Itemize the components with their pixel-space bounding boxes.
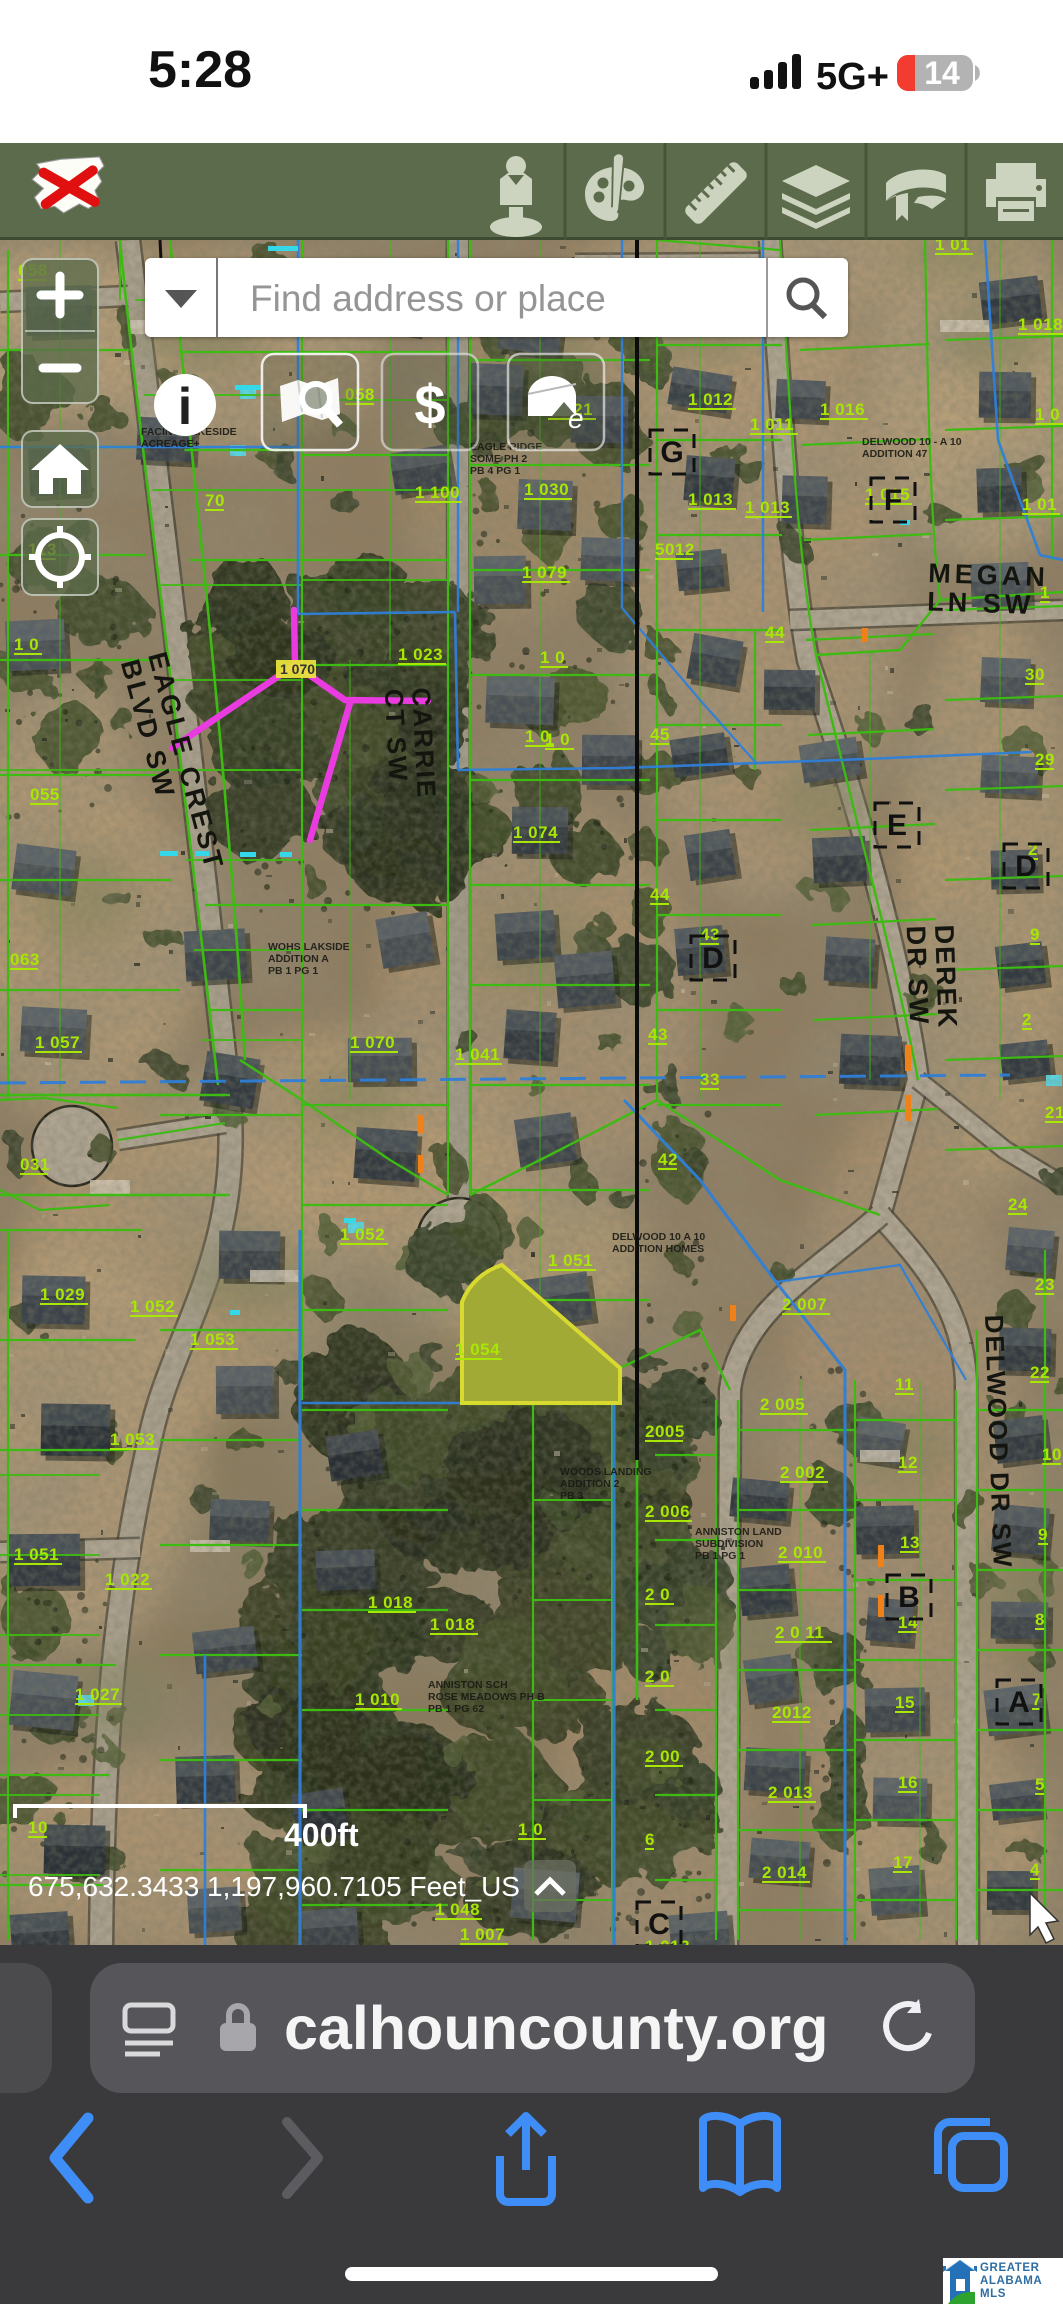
svg-text:GREATER: GREATER [980,2262,1040,2274]
svg-text:1 0: 1 0 [14,635,39,654]
svg-text:MLS: MLS [980,2288,1006,2300]
svg-text:2 010: 2 010 [778,1543,823,1562]
svg-text:1 053: 1 053 [190,1330,235,1349]
svg-text:2012: 2012 [772,1703,812,1722]
svg-text:30: 30 [1025,665,1045,684]
svg-text:1 057: 1 057 [35,1033,80,1052]
svg-text:2005: 2005 [645,1422,685,1441]
svg-text:10: 10 [1042,1445,1062,1464]
svg-text:22: 22 [1030,1363,1050,1382]
svg-text:5012: 5012 [655,540,695,559]
svg-text:45: 45 [650,725,670,744]
svg-text:10: 10 [28,1818,48,1837]
svg-text:1 01: 1 01 [935,240,970,254]
svg-text:055: 055 [30,785,60,804]
svg-text:44: 44 [765,623,785,642]
svg-text:400ft: 400ft [284,1817,359,1853]
svg-text:i: i [178,378,192,436]
svg-text:9: 9 [1030,925,1040,944]
svg-text:1 053: 1 053 [110,1430,155,1449]
svg-text:1 051: 1 051 [548,1251,593,1270]
svg-text:42: 42 [658,1150,678,1169]
svg-text:2 007: 2 007 [782,1295,827,1314]
svg-text:1 018: 1 018 [1018,315,1063,334]
svg-text:D: D [702,942,724,975]
svg-text:calhouncounty.org: calhouncounty.org [284,1994,828,2062]
svg-text:1 011: 1 011 [750,415,794,434]
svg-text:9: 9 [1038,1525,1048,1544]
svg-text:4: 4 [1030,1860,1040,1879]
svg-text:e: e [568,403,584,434]
svg-text:031: 031 [20,1155,50,1174]
svg-text:E: E [887,809,907,842]
svg-text:DEREKDR SW: DEREKDR SW [901,924,963,1030]
svg-text:1 070: 1 070 [350,1033,395,1052]
svg-text:2 002: 2 002 [780,1463,825,1482]
svg-text:F: F [884,484,902,517]
svg-text:1 100: 1 100 [415,483,460,502]
svg-text:1 010: 1 010 [355,1690,400,1709]
svg-text:1 051: 1 051 [14,1545,59,1564]
svg-text:MEGANLN SW: MEGANLN SW [927,558,1049,621]
svg-text:44: 44 [650,885,670,904]
svg-text:17: 17 [893,1853,913,1872]
svg-text:1 007: 1 007 [460,1925,505,1944]
svg-text:2 005: 2 005 [760,1395,805,1414]
svg-text:2 0: 2 0 [645,1585,670,1604]
svg-text:5G+: 5G+ [816,56,889,98]
svg-text:6: 6 [645,1830,655,1849]
svg-text:D: D [1015,850,1037,883]
svg-text:B: B [898,1581,920,1614]
svg-text:11: 11 [895,1375,914,1394]
svg-text:5: 5 [1035,1775,1045,1794]
svg-text:29: 29 [1035,750,1055,769]
svg-text:1 079: 1 079 [522,563,567,582]
svg-text:1 0: 1 0 [545,730,570,749]
svg-text:14: 14 [898,1613,918,1632]
svg-text:1 018: 1 018 [368,1593,413,1612]
svg-text:1 030: 1 030 [524,480,569,499]
svg-text:1 029: 1 029 [40,1285,85,1304]
svg-text:A: A [1008,1686,1030,1719]
svg-text:DELWOOD 10 A 10ADDITION HOMES: DELWOOD 10 A 10ADDITION HOMES [612,1231,705,1255]
svg-text:14: 14 [924,55,960,91]
svg-text:2 014: 2 014 [762,1863,807,1882]
svg-text:$: $ [414,373,445,436]
svg-text:1 054: 1 054 [455,1340,500,1359]
svg-text:C: C [648,1908,670,1941]
svg-text:063: 063 [10,950,40,969]
svg-text:21: 21 [1045,1103,1063,1122]
svg-text:1 052: 1 052 [130,1297,175,1316]
svg-text:1 012: 1 012 [688,390,733,409]
svg-text:1 052: 1 052 [340,1225,385,1244]
svg-text:1 023: 1 023 [398,645,443,664]
svg-text:1 074: 1 074 [513,823,558,842]
svg-text:1 027: 1 027 [75,1685,120,1704]
svg-text:33: 33 [700,1070,720,1089]
svg-text:1 013: 1 013 [688,490,733,509]
svg-text:1 022: 1 022 [105,1570,150,1589]
svg-text:Find address or place: Find address or place [250,278,606,319]
svg-text:8: 8 [1035,1610,1045,1629]
svg-text:23: 23 [1035,1275,1055,1294]
svg-text:1 041: 1 041 [455,1045,500,1064]
svg-text:1 070: 1 070 [280,661,315,677]
svg-text:24: 24 [1008,1195,1028,1214]
svg-text:1 013: 1 013 [745,498,790,517]
svg-text:1 016: 1 016 [820,400,865,419]
svg-text:2: 2 [1022,1010,1032,1029]
svg-text:70: 70 [205,491,225,510]
svg-text:13: 13 [900,1533,920,1552]
svg-text:1 018: 1 018 [430,1615,475,1634]
svg-text:43: 43 [648,1025,668,1044]
svg-text:12: 12 [898,1453,918,1472]
svg-text:1 0: 1 0 [518,1820,543,1839]
svg-text:ALABAMA: ALABAMA [980,2275,1042,2287]
svg-text:1 048: 1 048 [435,1900,480,1919]
svg-text:2 006: 2 006 [645,1502,690,1521]
svg-text:2 0: 2 0 [645,1667,670,1686]
svg-text:1 0: 1 0 [1035,405,1060,424]
svg-text:2 0 11: 2 0 11 [775,1623,824,1642]
svg-text:G: G [660,436,683,469]
svg-text:1 01: 1 01 [1022,495,1057,514]
svg-text:2 00: 2 00 [645,1747,680,1766]
svg-text:2 013: 2 013 [768,1783,813,1802]
svg-text:15: 15 [895,1693,915,1712]
svg-text:1 0: 1 0 [540,648,565,667]
svg-text:16: 16 [898,1773,918,1792]
svg-text:675,632.3433 1,197,960.7105 Fe: 675,632.3433 1,197,960.7105 Feet_US [28,1871,520,1902]
